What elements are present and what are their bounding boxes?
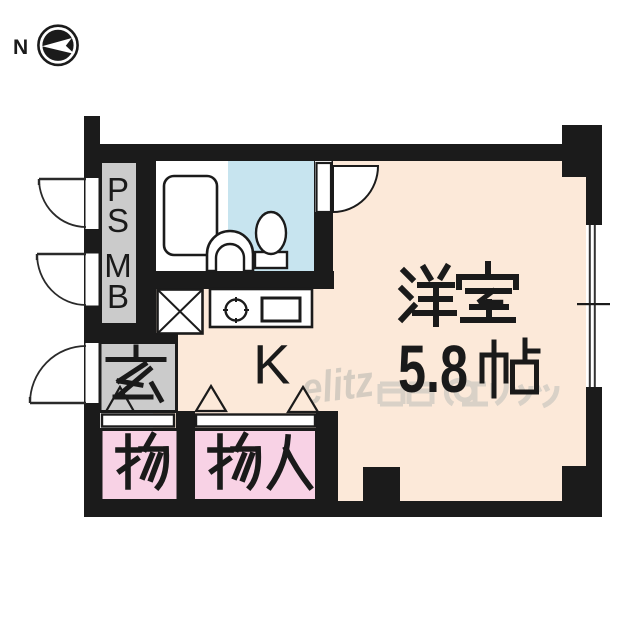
svg-text:K: K <box>253 333 290 396</box>
svg-text:N: N <box>13 36 28 59</box>
svg-text:S: S <box>107 202 129 239</box>
svg-text:B: B <box>107 278 129 315</box>
svg-text:5.8: 5.8 <box>398 332 468 407</box>
